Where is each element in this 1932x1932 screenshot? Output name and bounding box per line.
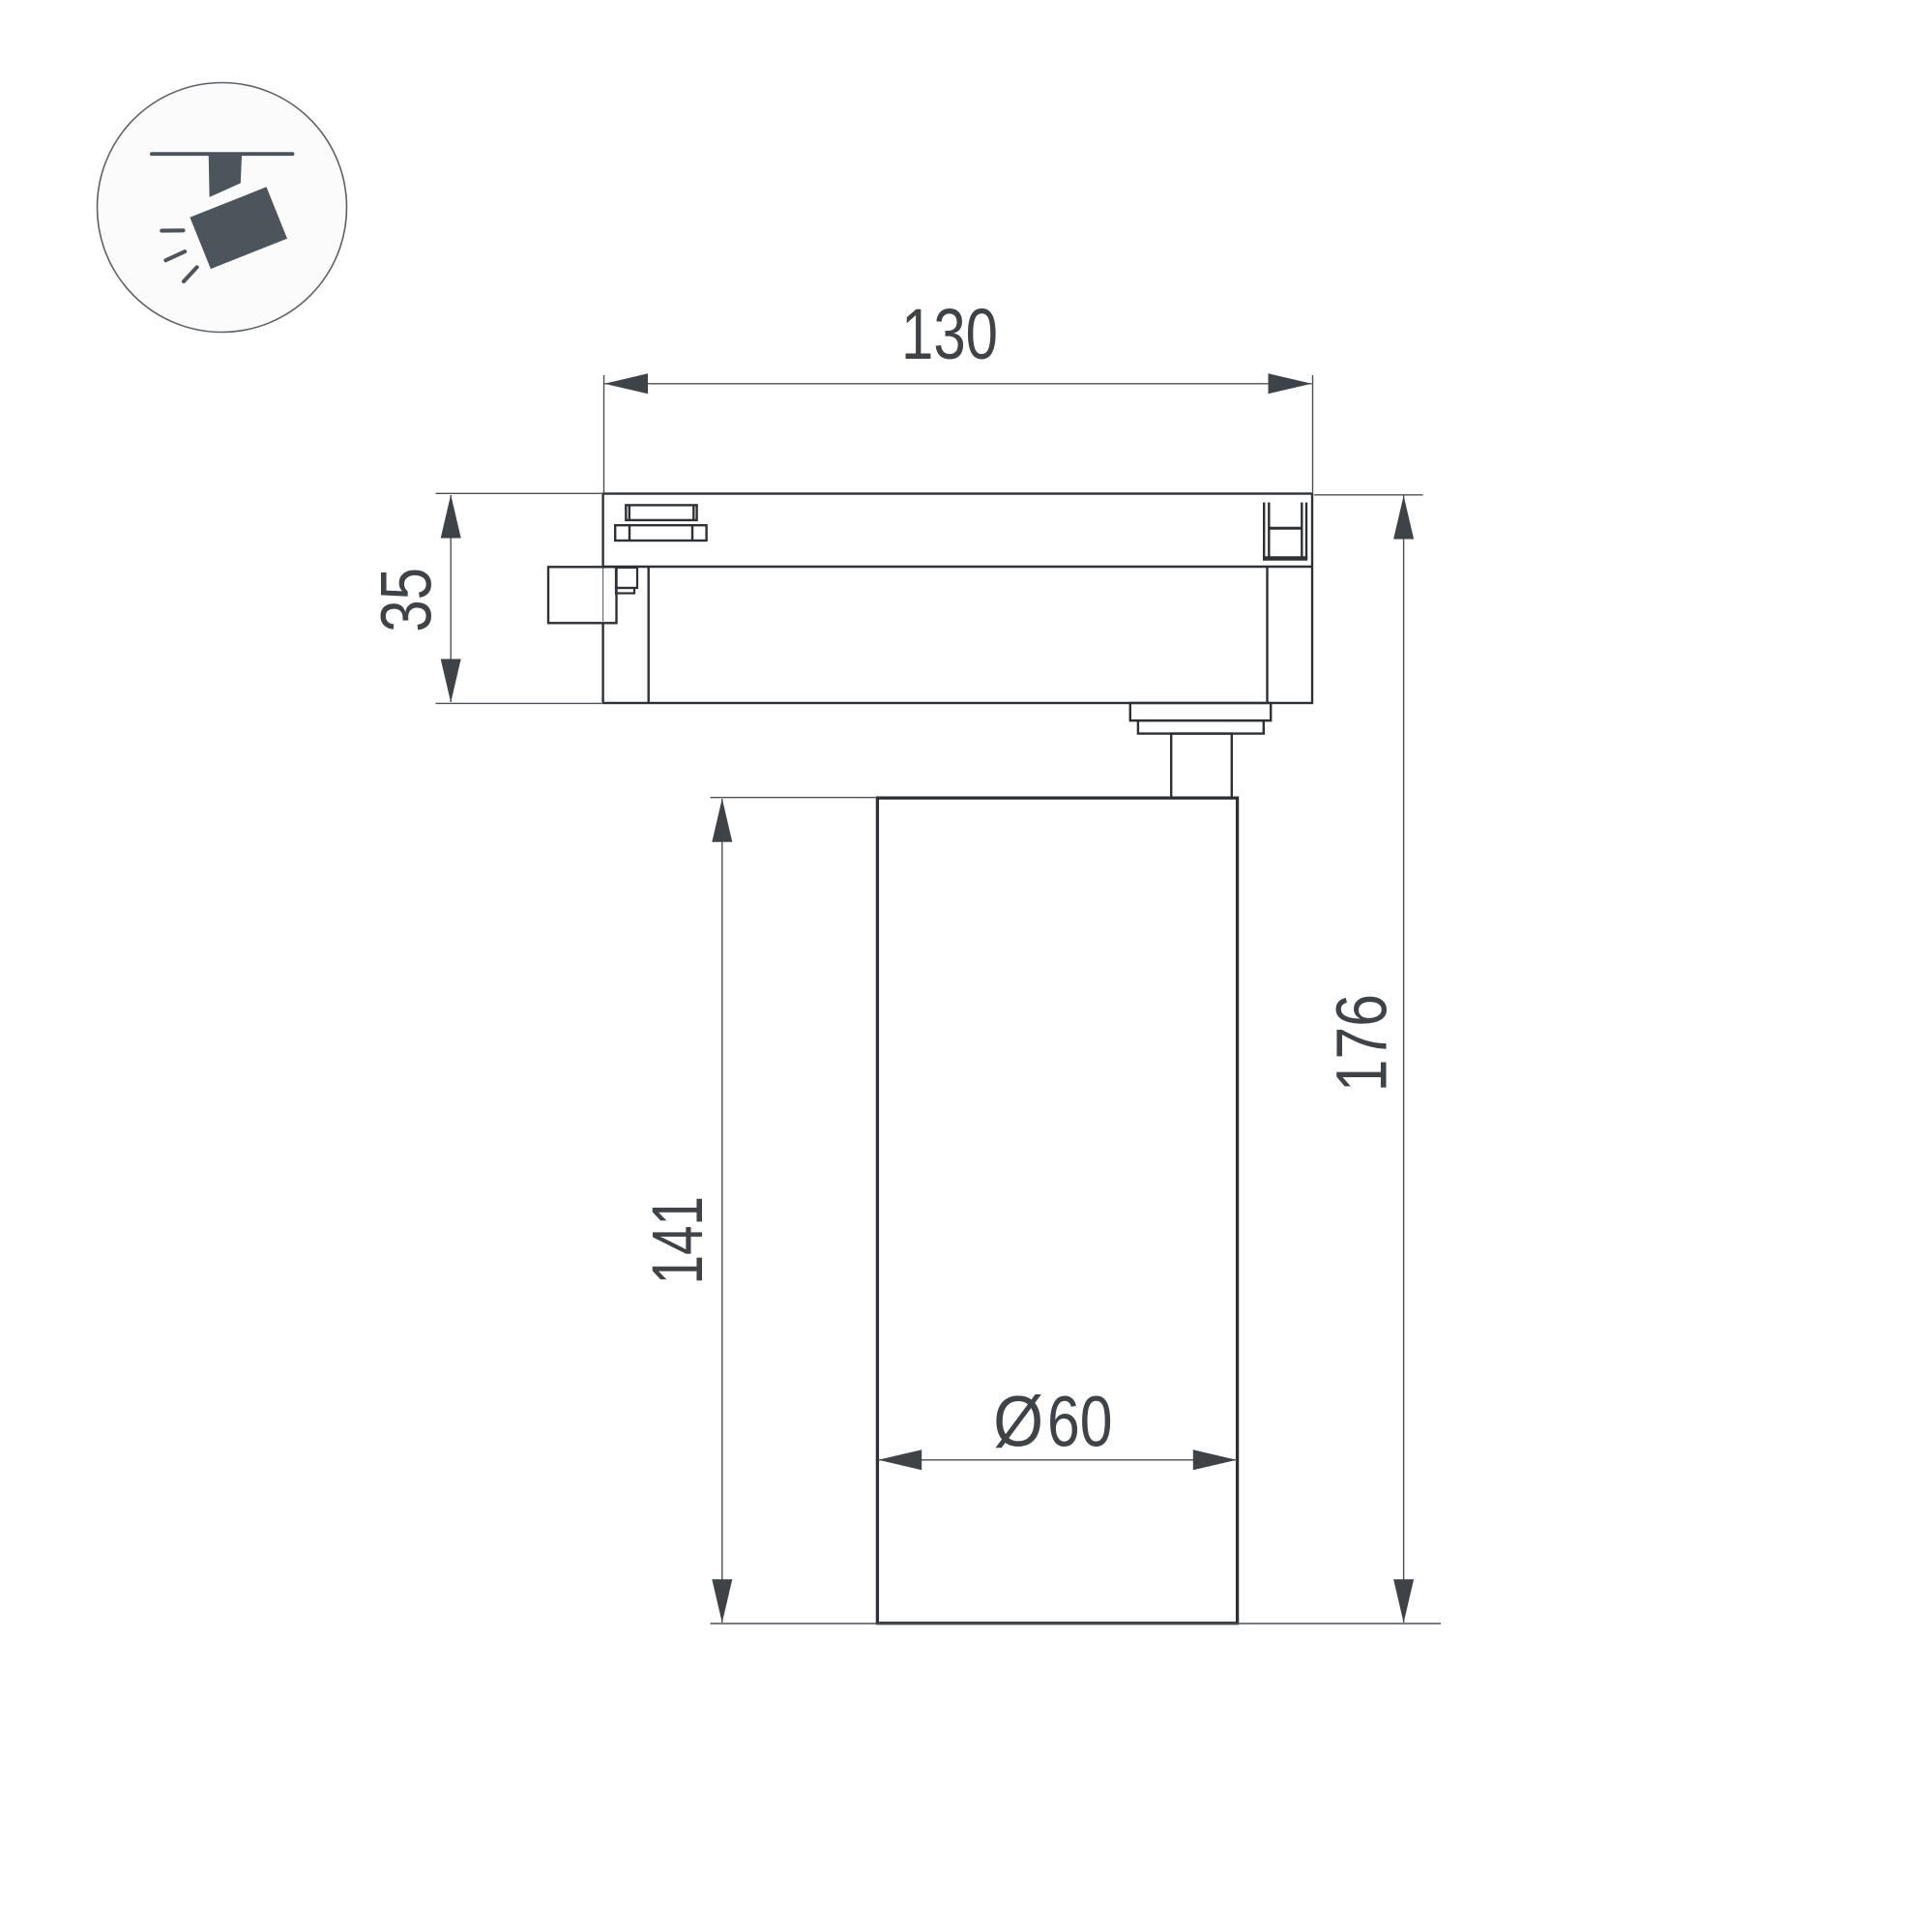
- svg-text:35: 35: [367, 568, 447, 632]
- svg-text:141: 141: [637, 1196, 717, 1284]
- svg-text:60: 60: [1047, 1383, 1112, 1462]
- svg-text:176: 176: [1323, 994, 1402, 1092]
- svg-text:130: 130: [901, 295, 998, 374]
- svg-text:Ø: Ø: [993, 1381, 1043, 1461]
